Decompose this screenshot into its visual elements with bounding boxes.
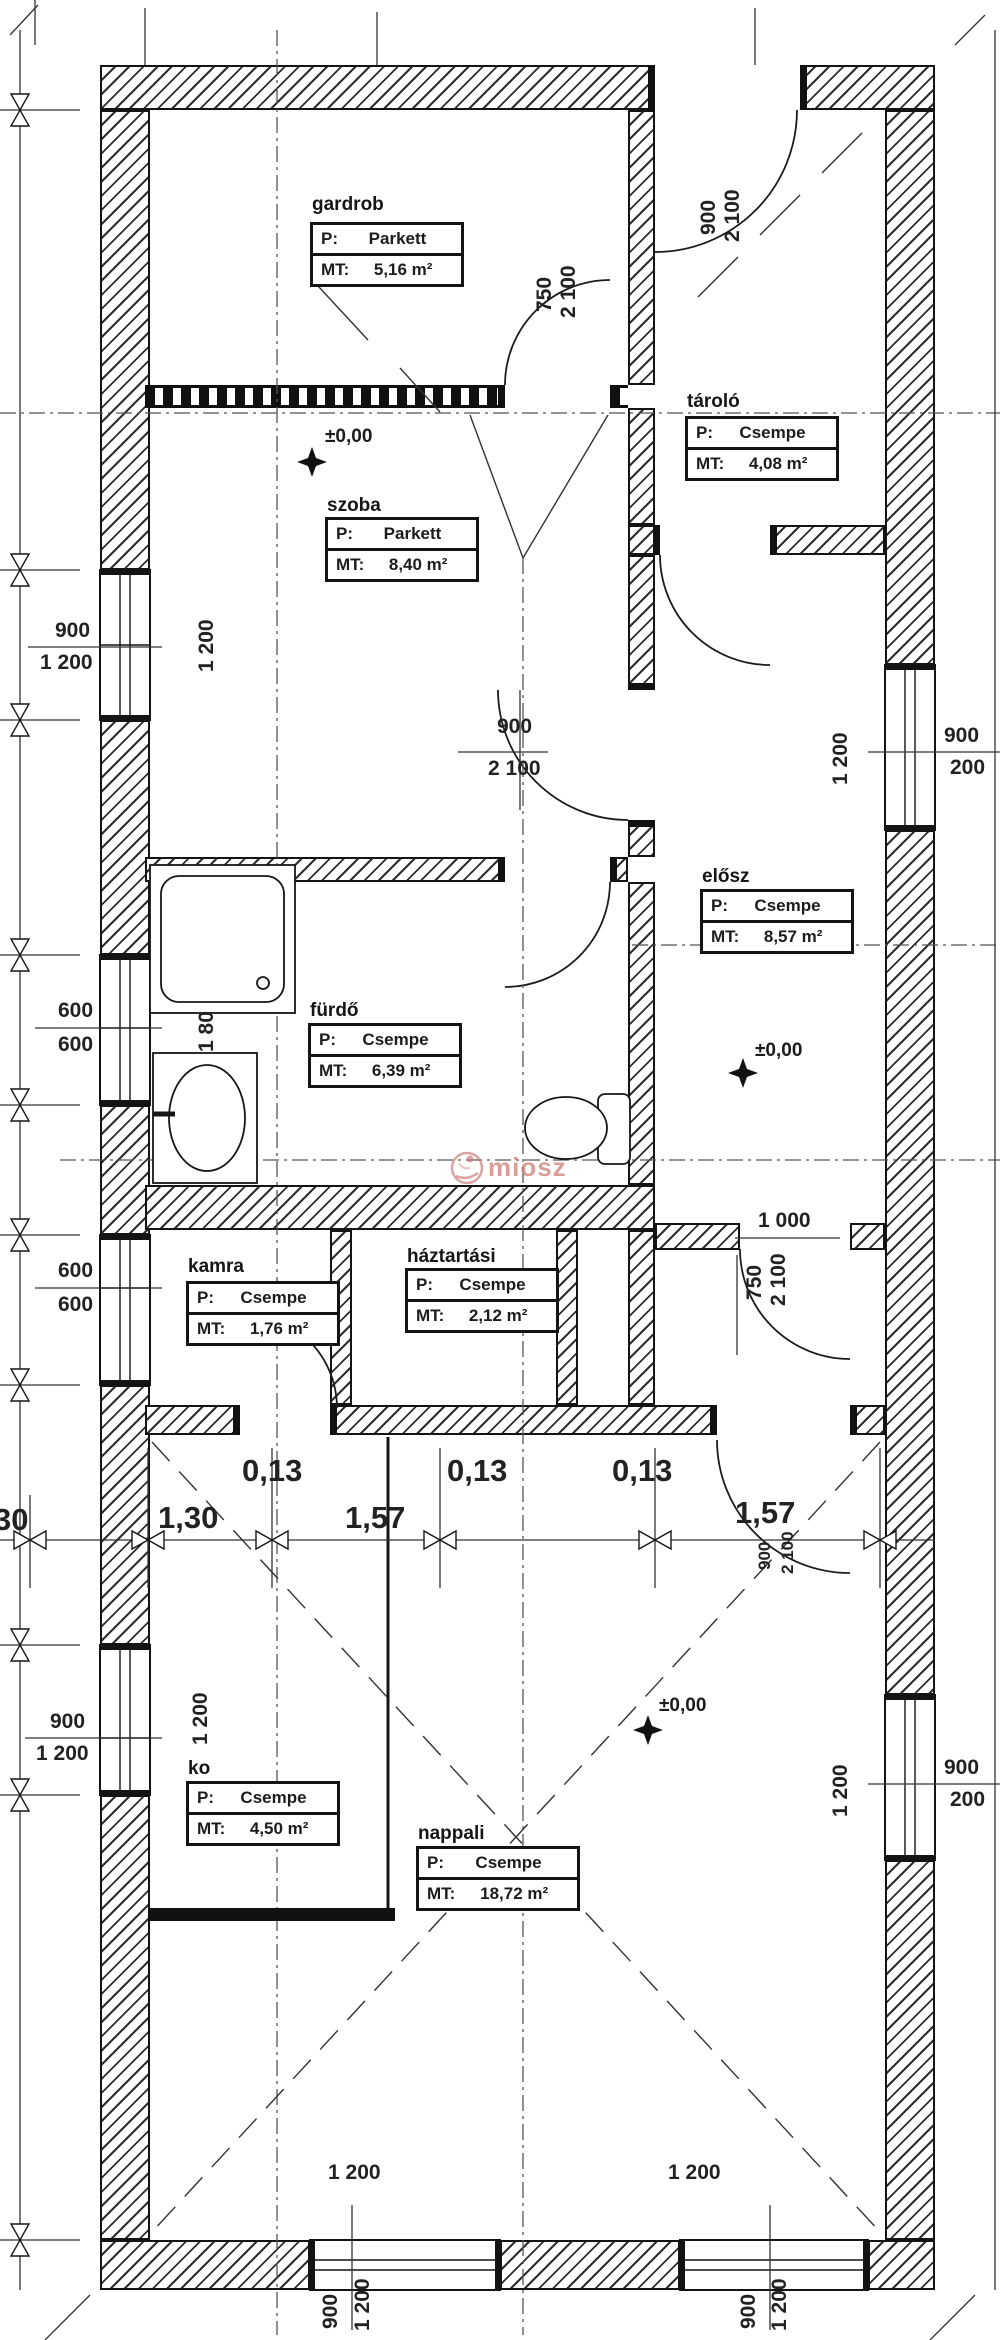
p-key: P: <box>313 229 338 249</box>
dim-right-w1-top: 900 <box>944 725 979 746</box>
dim-door-nappali-h: 2 100 <box>779 1531 796 1574</box>
dim-door-entry-w: 900 <box>698 200 719 235</box>
ko-counter <box>148 1908 395 1921</box>
room-title-gardrob: gardrob <box>312 194 384 216</box>
window-left-3 <box>100 1235 150 1385</box>
dim-left-w1-top: 900 <box>55 620 90 641</box>
room-box-tarolo: P:Csempe MT:4,08 m² <box>685 416 839 481</box>
dim-bot-w1-a: 900 <box>320 2294 341 2329</box>
mt-key: MT: <box>703 927 739 947</box>
room-title-ko: ko <box>188 1758 210 1780</box>
mt-key: MT: <box>189 1819 225 1839</box>
dim-door-gardrob-h: 2 100 <box>558 265 579 318</box>
p-key: P: <box>688 423 713 443</box>
room-box-furdo: P:Csempe MT:6,39 m² <box>308 1023 462 1088</box>
mt-key: MT: <box>311 1061 347 1081</box>
dim-chain-2: 0,13 <box>242 1455 302 1486</box>
dim-door-hall-h: 2 100 <box>768 1253 789 1306</box>
dim-door-hall-w: 750 <box>744 1265 765 1300</box>
dim-bot-w2-a: 900 <box>738 2294 759 2329</box>
dim-door-entry-h: 2 100 <box>722 189 743 242</box>
level-label-elosz: ±0,00 <box>755 1040 802 1062</box>
window-left-4 <box>100 1645 150 1795</box>
level-star-elosz <box>728 1058 758 1088</box>
dim-bot-w2-b: 1 200 <box>769 2278 790 2331</box>
dim-bot-w2-label: 1 200 <box>668 2162 721 2183</box>
p-value: Parkett <box>353 524 476 544</box>
dim-left-w1-side: 1 200 <box>196 619 217 672</box>
dim-chain-4: 0,13 <box>447 1455 507 1486</box>
mt-key: MT: <box>313 260 349 280</box>
p-value: Csempe <box>444 1853 577 1873</box>
dim-chain-6: 1,57 <box>735 1497 795 1528</box>
room-box-elosz: P:Csempe MT:8,57 m² <box>700 889 854 954</box>
window-left-2 <box>100 955 150 1105</box>
dim-bot-w1-label: 1 200 <box>328 2162 381 2183</box>
dim-left-w2-bot: 600 <box>58 1034 93 1055</box>
p-key: P: <box>703 896 728 916</box>
dim-left-w2-top: 600 <box>58 1000 93 1021</box>
level-label-szoba: ±0,00 <box>325 426 372 448</box>
room-box-nappali: P:Csempe MT:18,72 m² <box>416 1846 580 1911</box>
room-box-szoba: P:Parkett MT:8,40 m² <box>325 517 479 582</box>
room-title-haztartasi: háztartási <box>407 1246 496 1268</box>
p-value: Parkett <box>338 229 461 249</box>
dim-left-w1-bot: 1 200 <box>40 652 93 673</box>
window-right-1 <box>885 665 935 830</box>
p-value: Csempe <box>336 1030 459 1050</box>
mt-value: 2,12 m² <box>444 1306 556 1326</box>
dim-left-w4-side: 1 200 <box>190 1692 211 1745</box>
p-key: P: <box>328 524 353 544</box>
dim-chain-1: 1,30 <box>158 1502 218 1533</box>
dim-door-hall-a: 1 000 <box>758 1210 811 1231</box>
p-value: Csempe <box>728 896 851 916</box>
watermark: miosz <box>488 1152 567 1183</box>
level-star-szoba <box>297 447 327 477</box>
room-box-kamra: P:Csempe MT:1,76 m² <box>186 1281 340 1346</box>
mt-key: MT: <box>408 1306 444 1326</box>
window-left-1 <box>100 570 150 720</box>
room-title-nappali: nappali <box>418 1823 485 1845</box>
watermark-text: miosz <box>488 1152 567 1183</box>
dim-left-w4-bot: 1 200 <box>36 1743 89 1764</box>
level-stars <box>297 447 758 1745</box>
mt-key: MT: <box>688 454 724 474</box>
dim-left-w3-top: 600 <box>58 1260 93 1281</box>
dim-chain-5: 0,13 <box>612 1455 672 1486</box>
floor-plan: gardrob P:Parkett MT:5,16 m² szoba P:Par… <box>0 0 1000 2340</box>
window-bottom-1 <box>310 2240 500 2290</box>
room-title-szoba: szoba <box>327 495 381 517</box>
dim-right-w1-side: 1 200 <box>830 732 851 785</box>
dim-door-szoba-h: 2 100 <box>488 758 541 779</box>
dim-right-w2-bot: 200 <box>950 1789 985 1810</box>
dim-right-w1-bot: 200 <box>950 757 985 778</box>
ridge-line-right <box>523 415 608 558</box>
room-title-kamra: kamra <box>188 1256 244 1278</box>
door-arc-tarolo-lower <box>660 555 770 665</box>
room-title-tarolo: tároló <box>687 391 740 413</box>
dim-shower: 1 80 <box>196 1011 217 1052</box>
p-key: P: <box>311 1030 336 1050</box>
room-box-haztartasi: P:Csempe MT:2,12 m² <box>405 1268 559 1333</box>
p-value: Csempe <box>433 1275 556 1295</box>
dim-right-w2-side: 1 200 <box>830 1764 851 1817</box>
mt-value: 8,40 m² <box>364 555 476 575</box>
door-arc-furdo <box>505 882 610 987</box>
mt-value: 4,08 m² <box>724 454 836 474</box>
window-right-2 <box>885 1695 935 1860</box>
dim-bot-w1-b: 1 200 <box>352 2278 373 2331</box>
mt-value: 6,39 m² <box>347 1061 459 1081</box>
dim-chain-3: 1,57 <box>345 1502 405 1533</box>
room-box-ko: P:Csempe MT:4,50 m² <box>186 1781 340 1846</box>
dim-door-nappali-w: 900 <box>756 1542 773 1570</box>
mt-value: 18,72 m² <box>455 1884 577 1904</box>
mt-key: MT: <box>328 555 364 575</box>
mt-key: MT: <box>419 1884 455 1904</box>
dim-right-w2-top: 900 <box>944 1757 979 1778</box>
mt-value: 8,57 m² <box>739 927 851 947</box>
mt-value: 5,16 m² <box>349 260 461 280</box>
room-title-furdo: fürdő <box>310 1000 359 1022</box>
dim-left-w3-bot: 600 <box>58 1294 93 1315</box>
p-value: Csempe <box>713 423 836 443</box>
watermark-logo-icon <box>452 1153 482 1183</box>
p-value: Csempe <box>214 1288 337 1308</box>
mt-value: 1,76 m² <box>225 1319 337 1339</box>
p-key: P: <box>189 1288 214 1308</box>
washbasin <box>153 1053 257 1183</box>
room-box-gardrob: P:Parkett MT:5,16 m² <box>310 222 464 287</box>
p-key: P: <box>419 1853 444 1873</box>
p-key: P: <box>189 1788 214 1808</box>
level-star-nappali <box>633 1715 663 1745</box>
mt-key: MT: <box>189 1319 225 1339</box>
shower-tray <box>150 865 295 1013</box>
level-label-nappali: ±0,00 <box>659 1695 706 1717</box>
mt-value: 4,50 m² <box>225 1819 337 1839</box>
p-value: Csempe <box>214 1788 337 1808</box>
door-arc-szoba <box>498 690 628 820</box>
dim-door-szoba-w: 900 <box>497 716 532 737</box>
dim-door-gardrob-w: 750 <box>534 277 555 312</box>
dim-left-w4-top: 900 <box>50 1711 85 1732</box>
room-title-elosz: elősz <box>702 866 750 888</box>
dim-chain-0: 30 <box>0 1504 28 1535</box>
p-key: P: <box>408 1275 433 1295</box>
